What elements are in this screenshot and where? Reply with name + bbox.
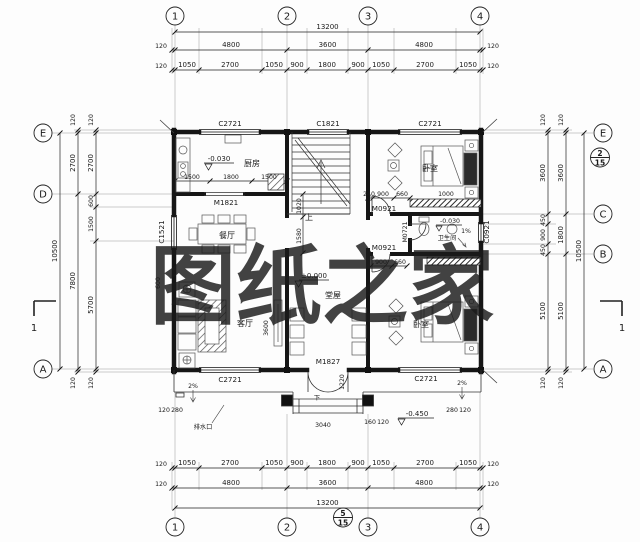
floor-plan-drawing: 1 2 3 4 1 2 3 4 E D A E C B A 2 15 5 15 … — [0, 0, 640, 542]
dim-bot-bay-2: 4800 — [415, 479, 433, 487]
axis-right-A: A — [600, 365, 607, 376]
dim-porch-l1: 280 — [171, 407, 183, 414]
label-win-bottom-right: C2721 — [414, 374, 437, 383]
label-door-front: M1827 — [316, 357, 341, 366]
dim-top-d7: 2700 — [416, 61, 434, 69]
dim-right-e1: 120 — [558, 114, 565, 126]
axis-left-D: D — [39, 190, 47, 201]
stairs-up-label: 上 — [305, 213, 313, 222]
dim-right-i3: 450 — [540, 244, 547, 256]
dim-bedtop-2: 660 — [396, 191, 408, 198]
slope-terrace-right: 2% — [457, 380, 467, 387]
axis-bottom-1: 1 — [172, 523, 178, 534]
axis-top-3: 3 — [365, 12, 371, 23]
dim-top-d6: 1050 — [372, 61, 390, 69]
room-label-kitchen: 厨房 — [244, 158, 260, 168]
dim-left-e2: 120 — [70, 377, 77, 389]
dim-top-d1: 2700 — [221, 61, 239, 69]
dim-right-e0: 120 — [540, 114, 547, 126]
dim-bot-edge-3: 120 — [487, 481, 499, 488]
axis-top-2: 2 — [284, 12, 290, 23]
axis-left-A: A — [40, 365, 47, 376]
axis-top-1: 1 — [172, 12, 178, 23]
dim-top-bay-1: 3600 — [319, 41, 337, 49]
dim-bot-edge-1: 120 — [155, 481, 167, 488]
dim-bot-overall: 13200 — [316, 499, 338, 507]
axis-right-E: E — [600, 129, 606, 140]
dim-porch-s0: 160 — [364, 419, 376, 426]
dim-top-overall: 13200 — [316, 23, 338, 31]
dim-bot-bay-1: 3600 — [319, 479, 337, 487]
dim-porch-r0: 280 — [446, 407, 458, 414]
label-door-kitchen: M1821 — [214, 198, 239, 207]
dim-bot-d5: 900 — [351, 459, 364, 467]
dim-porch-r1: 120 — [459, 407, 471, 414]
dim-right-i0: 3600 — [539, 164, 547, 182]
window-C1821-top-mid — [307, 130, 349, 135]
dim-right-o0: 3600 — [557, 164, 565, 182]
detail-bubble-bottom-num: 5 — [340, 509, 345, 518]
dim-left-o0: 2700 — [69, 154, 77, 172]
floor-plan-canvas: 1 2 3 4 1 2 3 4 E D A E C B A 2 15 5 15 … — [0, 0, 640, 542]
dim-porch-center: 3040 — [315, 422, 331, 429]
dim-kitchen-0: 1500 — [184, 174, 200, 181]
section-label-left: 1 — [31, 323, 37, 334]
dim-top-d5: 900 — [351, 61, 364, 69]
dim-top-edge-3: 120 — [487, 63, 499, 70]
dim-right-o2: 5100 — [557, 302, 565, 320]
dim-top-edge-1: 120 — [155, 63, 167, 70]
door-M1821-leaf — [204, 193, 245, 196]
label-win-bottom-left: C2721 — [218, 375, 241, 384]
dim-left-i1: 600 — [88, 195, 95, 207]
slope-bath: 1% — [461, 228, 471, 235]
axis-top-4: 4 — [477, 12, 483, 23]
dim-porch-depth: 1220 — [339, 374, 346, 390]
dim-bot-d7: 2700 — [416, 459, 434, 467]
detail-bubble-right-num: 2 — [597, 149, 602, 158]
dim-bot-d0: 1050 — [178, 459, 196, 467]
axis-right-C: C — [600, 210, 607, 221]
dim-left-i2: 1500 — [88, 216, 95, 232]
detail-bubble-right-sheet: 15 — [595, 159, 605, 168]
watermark-text: 图纸之家 — [150, 237, 494, 337]
dim-left-e1: 120 — [88, 114, 95, 126]
dim-left-e0: 120 — [70, 114, 77, 126]
dim-bedtop-extra: 1000 — [438, 191, 454, 198]
dim-left-i0: 2700 — [87, 154, 95, 172]
dim-right-i2: 900 — [540, 229, 547, 241]
dim-left-o1: 7800 — [69, 272, 77, 290]
kitchen-furniture — [176, 135, 241, 192]
window-C2721-top-right — [398, 130, 462, 135]
dim-right-i4: 5100 — [539, 302, 547, 320]
dim-top-bay-2: 4800 — [415, 41, 433, 49]
dim-top-d3: 900 — [290, 61, 303, 69]
axis-right-B: B — [600, 250, 607, 261]
dim-kitchen-1: 1800 — [223, 174, 239, 181]
dim-top-edge-0: 120 — [155, 43, 167, 50]
dim-kitchen-2: 1500 — [261, 174, 277, 181]
dim-left-e3: 120 — [88, 377, 95, 389]
stairs-down-label: 下 — [314, 395, 320, 402]
dim-bot-bay-0: 4800 — [222, 479, 240, 487]
label-win-top-mid: C1821 — [316, 119, 339, 128]
level-bath: -0.030 — [440, 218, 460, 225]
room-label-bedroom-top: 卧室 — [422, 163, 438, 173]
level-terrace: -0.450 — [406, 410, 429, 418]
window-C2721-bottom-right — [398, 368, 462, 373]
dim-top-d8: 1050 — [459, 61, 477, 69]
dim-bot-edge-2: 120 — [487, 461, 499, 468]
dim-hall-wall-0: 1020 — [296, 198, 303, 214]
dim-bot-d6: 1050 — [372, 459, 390, 467]
axis-bottom-4: 4 — [477, 523, 483, 534]
dim-bedtop-0: 240 — [363, 191, 375, 198]
dim-porch-l0: 120 — [158, 407, 170, 414]
axis-left-E: E — [40, 129, 46, 140]
dim-bot-edge-0: 120 — [155, 461, 167, 468]
dim-top-d2: 1050 — [265, 61, 283, 69]
label-door-bed-top: M0921 — [372, 204, 397, 213]
label-win-top-right: C2721 — [418, 119, 441, 128]
dim-bot-d8: 1050 — [459, 459, 477, 467]
dim-bot-d3: 900 — [290, 459, 303, 467]
dim-right-e3: 120 — [558, 377, 565, 389]
dim-bot-d4: 1800 — [318, 459, 336, 467]
dim-left-overall: 10500 — [51, 240, 59, 262]
axis-bottom-2: 2 — [284, 523, 290, 534]
dim-right-e2: 120 — [540, 377, 547, 389]
label-win-top-left: C2721 — [218, 119, 241, 128]
slope-terrace-left: 2% — [188, 383, 198, 390]
dim-porch-s1: 120 — [377, 419, 389, 426]
dim-left-i3: 5700 — [87, 296, 95, 314]
drain-note: 排水口 — [194, 423, 213, 431]
detail-bubble-bottom-sheet: 15 — [338, 519, 348, 528]
section-label-right: 1 — [619, 323, 625, 334]
axis-bottom-3: 3 — [365, 523, 371, 534]
dim-top-d0: 1050 — [178, 61, 196, 69]
window-C2721-top-left — [199, 130, 261, 135]
dim-right-i1: 450 — [540, 214, 547, 226]
level-kitchen: -0.030 — [208, 155, 231, 163]
dim-top-bay-0: 4800 — [222, 41, 240, 49]
dim-right-overall: 10500 — [575, 240, 583, 262]
dim-top-edge-2: 120 — [487, 43, 499, 50]
dim-bot-d1: 2700 — [221, 459, 239, 467]
dim-bedtop-1: 900 — [377, 191, 389, 198]
dim-top-d4: 1800 — [318, 61, 336, 69]
dim-right-o1: 1800 — [557, 226, 565, 244]
dim-bot-d2: 1050 — [265, 459, 283, 467]
window-C2721-bottom-left — [199, 368, 261, 373]
